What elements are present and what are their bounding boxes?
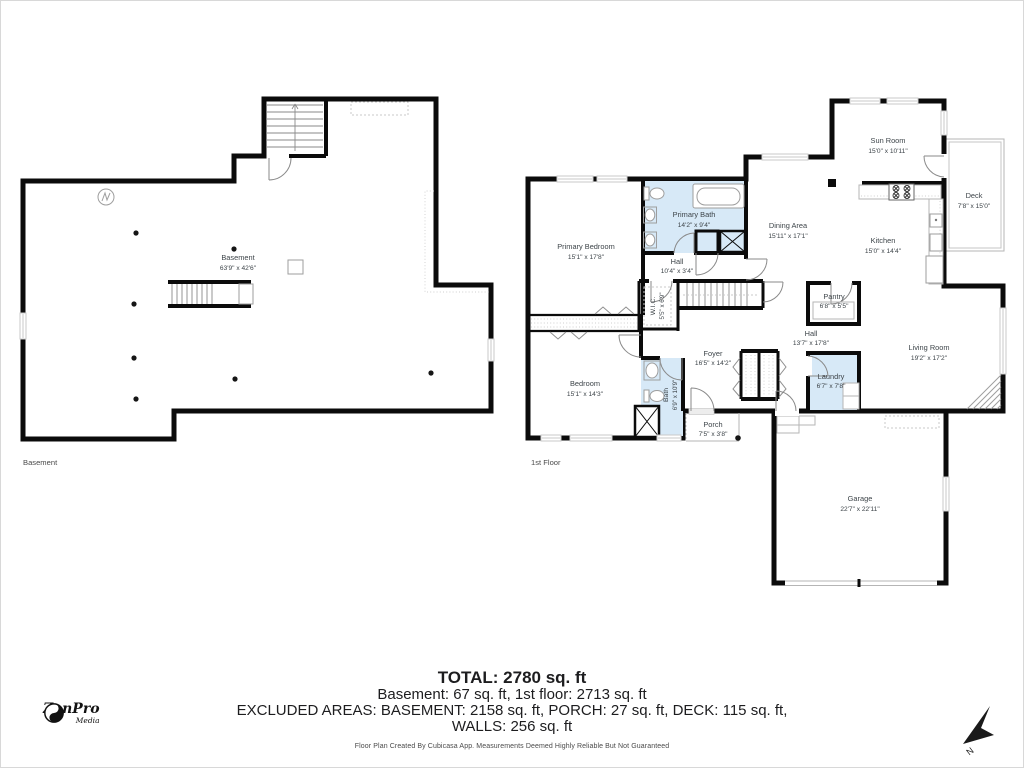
room-dims-porch: 7'5" x 3'8" [699, 431, 728, 438]
room-dims-primary-bedroom: 15'1" x 17'8" [568, 254, 605, 261]
room-label-hall: Hall [805, 329, 818, 338]
toilet-icon [644, 187, 664, 200]
walls-area-text: WALLS: 256 sq. ft [1, 719, 1023, 735]
room-dims-hall-upper: 10'4" x 3'4" [661, 268, 694, 275]
room-dims-garage: 22'7" x 22'11" [840, 506, 880, 513]
room-dims-living-room: 19'2" x 17'2" [911, 355, 948, 362]
room-label-pantry: Pantry [823, 292, 845, 301]
room-dims-kitchen: 15'0" x 14'4" [865, 248, 902, 255]
foyer-closets [733, 351, 786, 399]
room-dims-bath: 6'9" x 10'9" [672, 380, 679, 411]
room-label-wic: W.I.C. [650, 297, 657, 316]
total-area-text: TOTAL: 2780 sq. ft [1, 669, 1023, 686]
room-dims-pantry: 6'8" x 5'5" [820, 303, 849, 310]
first-floor-plan: Garage 22'7" x 22'11" Deck 7'8" x 15'0" [528, 98, 1006, 588]
room-label-bedroom: Bedroom [570, 379, 600, 388]
refrigerator-icon [926, 256, 943, 283]
floor-plan-canvas: Basement 63'9" x 42'6" Basement Garage 2… [1, 1, 1024, 768]
room-label-deck: Deck [966, 191, 983, 200]
room-label-bath: Bath [663, 388, 670, 402]
room-dims-foyer: 16'5" x 14'2" [695, 360, 732, 367]
disclaimer-text: Floor Plan Created By Cubicasa App. Meas… [1, 743, 1023, 750]
floor-plan-page: Basement 63'9" x 42'6" Basement Garage 2… [0, 0, 1024, 768]
room-label-basement: Basement [221, 253, 254, 262]
room-label-dining: Dining Area [769, 221, 808, 230]
floor-label-basement: Basement [23, 458, 58, 467]
room-dims-sun-room: 15'0" x 10'11" [868, 148, 908, 155]
excluded-areas-text: EXCLUDED AREAS: BASEMENT: 2158 sq. ft, P… [1, 703, 1023, 719]
room-dims-basement: 63'9" x 42'6" [220, 265, 257, 272]
room-label-porch: Porch [703, 420, 722, 429]
toilet-icon [644, 390, 664, 402]
room-label-primary-bedroom: Primary Bedroom [557, 242, 615, 251]
shower-icon [635, 406, 659, 437]
room-dims-dining: 15'11" x 17'1" [768, 233, 808, 240]
garage: Garage 22'7" x 22'11" [774, 412, 949, 588]
room-label-laundry: Laundry [818, 372, 845, 381]
room-label-sun-room: Sun Room [871, 136, 906, 145]
room-label-foyer: Foyer [704, 349, 723, 358]
room-dims-laundry: 6'7" x 7'8" [817, 383, 846, 390]
room-dims-deck: 7'8" x 15'0" [958, 203, 991, 210]
room-dims-wic: 5'5" x 6'9" [659, 292, 666, 319]
room-dims-hall: 13'7" x 17'8" [793, 340, 830, 347]
stove-icon [889, 184, 914, 200]
basement-outline [23, 99, 491, 439]
bathtub-icon [693, 184, 744, 208]
porch: Porch 7'5" x 3'8" [686, 413, 741, 441]
room-label-living-room: Living Room [908, 343, 949, 352]
room-label-hall-upper: Hall [671, 257, 684, 266]
area-summary: TOTAL: 2780 sq. ft Basement: 67 sq. ft, … [1, 669, 1023, 750]
room-label-garage: Garage [848, 494, 873, 503]
floor-label-first: 1st Floor [531, 458, 561, 467]
room-label-primary-bath: Primary Bath [673, 210, 716, 219]
by-floor-area-text: Basement: 67 sq. ft, 1st floor: 2713 sq.… [1, 687, 1023, 703]
deck: Deck 7'8" x 15'0" [946, 139, 1004, 251]
shower-icon [720, 231, 745, 252]
basement-floor-plan: Basement 63'9" x 42'6" Basement [20, 99, 494, 467]
room-dims-bedroom: 15'1" x 14'3" [567, 391, 604, 398]
room-label-kitchen: Kitchen [871, 236, 896, 245]
room-dims-primary-bath: 14'2" x 9'4" [678, 222, 711, 229]
